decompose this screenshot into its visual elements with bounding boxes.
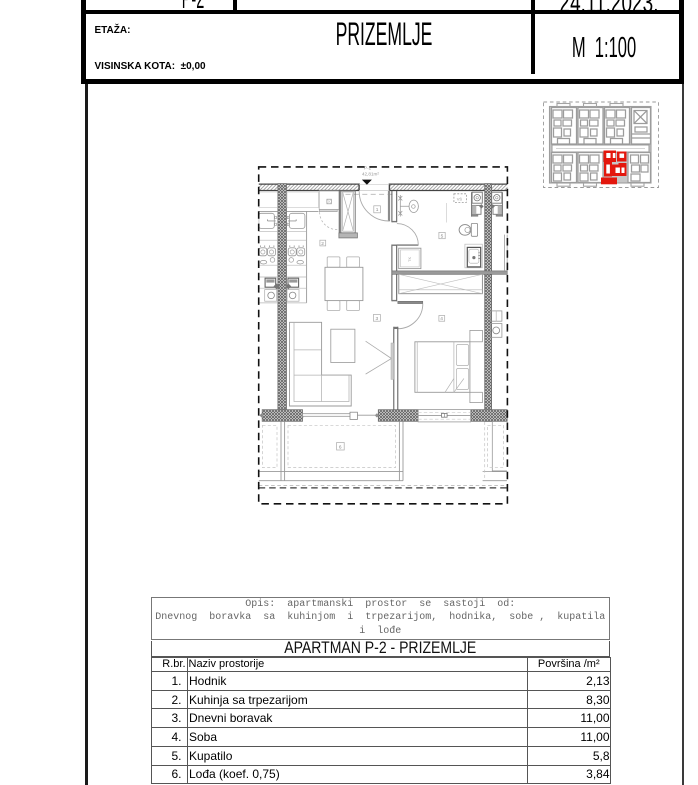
- svg-text:2: 2: [321, 241, 324, 247]
- svg-text:5: 5: [441, 234, 444, 240]
- svg-text:1: 1: [376, 207, 379, 213]
- svg-text:3: 3: [376, 316, 379, 322]
- svg-text:42,81m²: 42,81m²: [362, 172, 379, 177]
- svg-text:6: 6: [339, 445, 342, 451]
- svg-text:4: 4: [440, 316, 443, 322]
- svg-text:VŠ: VŠ: [457, 196, 463, 201]
- svg-text:TK: TK: [407, 257, 412, 262]
